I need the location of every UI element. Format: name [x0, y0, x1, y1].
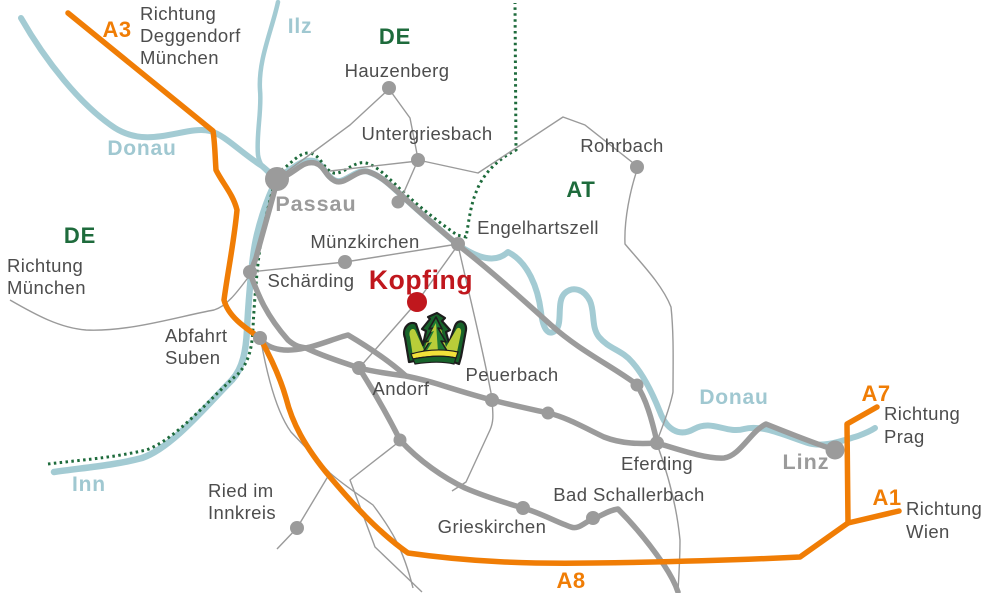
road-untergriesbach-west: [330, 161, 418, 171]
road-rohrbach-eferding: [625, 167, 673, 441]
road-andorf-south: [350, 441, 422, 592]
peuerbach-label: Peuerbach: [465, 364, 558, 385]
eferding-label: Eferding: [621, 453, 693, 474]
passau-dot: [265, 167, 289, 191]
road-andorf-grieskirchen: [359, 368, 678, 592]
direction-wien-line2: Wien: [906, 521, 950, 542]
andorf-label: Andorf: [373, 378, 430, 399]
direction-wien-line1: Richtung: [906, 498, 982, 519]
road-passau-schaerding: [250, 181, 277, 272]
road-junction-andorf: [306, 348, 359, 368]
road-junction-dot: [394, 434, 407, 447]
crown-base-band: [413, 356, 456, 364]
ried-dot: [290, 521, 304, 535]
minor-roads-layer: [10, 89, 680, 592]
untergriesbach-label: Untergriesbach: [361, 123, 492, 144]
andorf-dot: [352, 361, 366, 375]
schaerding-label: Schärding: [268, 270, 355, 291]
muenzkirchen-label: Münzkirchen: [310, 231, 419, 252]
direction-prag-line1: Richtung: [884, 403, 960, 424]
eferding-dot: [650, 436, 664, 450]
road-ried-spur: [277, 473, 330, 549]
a8-label: A8: [556, 568, 585, 593]
grieskirchen-label: Grieskirchen: [438, 516, 547, 537]
labels-layer: A3 A7 A1 A8 Richtung Deggendorf München …: [7, 3, 982, 593]
peuerbach-road-dot: [542, 407, 555, 420]
hauzenberg-dot: [382, 81, 396, 95]
road-peuerbach-south: [452, 400, 493, 491]
crown-trees-logo-icon: [404, 313, 466, 364]
linz-label: Linz: [783, 450, 830, 474]
rohrbach-dot: [630, 160, 644, 174]
highways-layer: [68, 13, 899, 563]
direction-muenchen-line1: Richtung: [7, 255, 83, 276]
a1-label: A1: [872, 485, 901, 510]
direction-a3-line2: Deggendorf: [140, 25, 241, 46]
peuerbach-dot: [485, 393, 499, 407]
highway-a1: [848, 511, 899, 523]
ried-line2: Innkreis: [208, 502, 276, 523]
inn-label: Inn: [72, 473, 106, 496]
kopfing-destination-dot: [407, 292, 427, 312]
suben-dot: [253, 331, 267, 345]
donau-bend-dot: [631, 379, 644, 392]
rohrbach-label: Rohrbach: [580, 135, 663, 156]
donau-road-dot: [392, 196, 405, 209]
map-graphic: A3 A7 A1 A8 Richtung Deggendorf München …: [0, 0, 1000, 593]
region-de-north-label: DE: [379, 24, 411, 49]
untergriesbach-dot: [411, 153, 425, 167]
bad-schallerbach-dot: [586, 511, 600, 525]
schaerding-dot: [243, 265, 257, 279]
muenzkirchen-dot: [338, 255, 352, 269]
bad-schallerbach-label: Bad Schallerbach: [553, 484, 704, 505]
town-dots-layer: [243, 81, 845, 535]
direction-muenchen-line2: München: [7, 277, 86, 298]
abfahrt-suben-line2: Suben: [165, 347, 221, 368]
engelhartszell-label: Engelhartszell: [477, 217, 599, 238]
donau-river-east: [276, 161, 875, 445]
passau-label: Passau: [275, 192, 356, 216]
grieskirchen-dot: [516, 501, 530, 515]
direction-a3-line3: München: [140, 47, 219, 68]
region-de-west-label: DE: [64, 223, 96, 248]
kopfing-location-map: A3 A7 A1 A8 Richtung Deggendorf München …: [0, 0, 1000, 593]
region-at-label: AT: [566, 177, 595, 202]
ilz-label: Ilz: [288, 15, 313, 38]
ilz-river: [258, 2, 278, 178]
donau-lower-label: Donau: [699, 386, 768, 409]
direction-a3-line1: Richtung: [140, 3, 216, 24]
a3-label: A3: [102, 17, 131, 42]
hauzenberg-label: Hauzenberg: [345, 60, 450, 81]
kopfing-label: Kopfing: [369, 265, 473, 295]
engelhartszell-dot: [451, 237, 465, 251]
donau-upper-label: Donau: [107, 137, 176, 160]
direction-prag-line2: Prag: [884, 426, 925, 447]
abfahrt-suben-line1: Abfahrt: [165, 325, 227, 346]
ried-line1: Ried im: [208, 480, 274, 501]
